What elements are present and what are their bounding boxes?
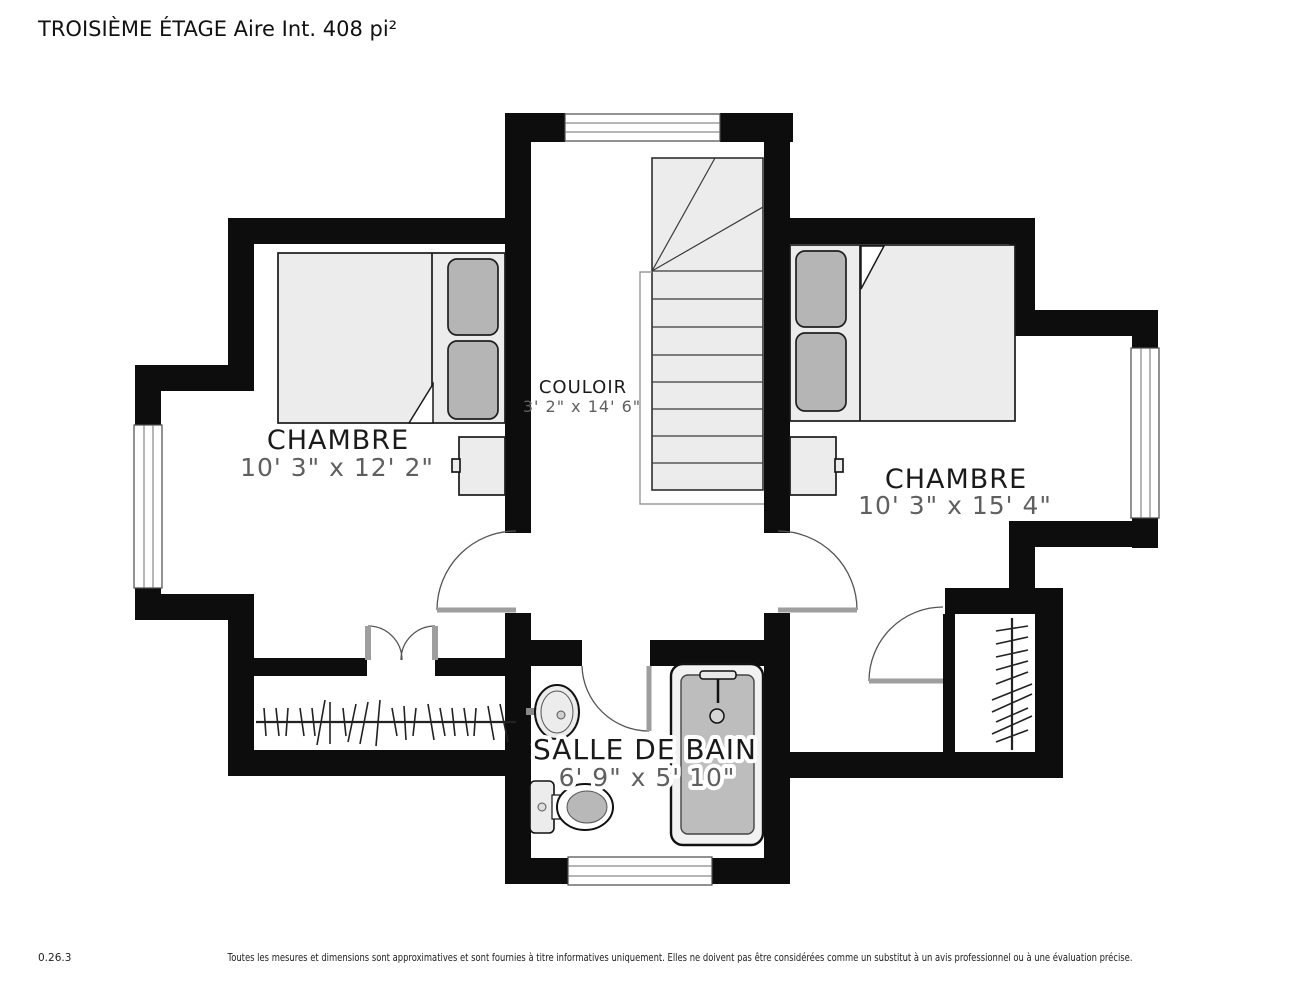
page-title: TROISIÈME ÉTAGE Aire Int. 408 pi² <box>37 16 397 41</box>
window-top <box>565 114 720 141</box>
door-closet-left-double <box>365 626 438 660</box>
tub-drain <box>710 709 724 723</box>
bed-left <box>278 253 505 423</box>
door-closet-right <box>869 607 943 681</box>
room-dim-bedroom-left: 10' 3" x 12' 2" <box>240 453 434 482</box>
door-bedroom-right <box>778 531 857 610</box>
sink <box>526 685 579 739</box>
room-label-bathroom: SALLE DE BAIN <box>533 733 757 766</box>
staircase <box>640 158 764 504</box>
closet-rod-left <box>256 700 516 746</box>
door-bedroom-left <box>437 531 516 610</box>
door-swing-arc <box>869 607 943 681</box>
nightstand-left <box>452 437 505 495</box>
window-right <box>1131 348 1159 518</box>
closet-rod-right <box>992 618 1032 750</box>
floor-plan-svg: TROISIÈME ÉTAGE Aire Int. 408 pi² CHAMBR… <box>0 0 1295 1000</box>
room-dim-bathroom: 6' 9" x 5' 10" <box>559 763 736 792</box>
door-leaf <box>365 626 371 660</box>
room-label-corridor: COULOIR <box>539 377 627 398</box>
room-label-bedroom-left: CHAMBRE <box>267 425 409 456</box>
disclaimer-text: Toutes les mesures et dimensions sont ap… <box>227 952 1133 964</box>
nightstand-right <box>790 437 843 495</box>
door-swing-arc <box>401 626 435 660</box>
door-swing-arc <box>368 626 402 660</box>
room-dim-corridor: 3' 2" x 14' 6" <box>523 397 641 416</box>
floorplan-page: TROISIÈME ÉTAGE Aire Int. 408 pi² CHAMBR… <box>0 0 1295 1000</box>
door-bathroom <box>582 666 649 731</box>
bed-right <box>790 245 1015 421</box>
door-swing-arc <box>582 666 649 731</box>
window-bottom <box>568 857 712 885</box>
window-left <box>134 425 162 588</box>
tub-faucet <box>700 671 736 679</box>
door-swing-arc <box>437 531 516 610</box>
door-leaf <box>432 626 438 660</box>
door-swing-arc <box>778 531 857 610</box>
room-dim-bedroom-right: 10' 3" x 15' 4" <box>858 491 1052 520</box>
version-label: 0.26.3 <box>38 952 71 964</box>
